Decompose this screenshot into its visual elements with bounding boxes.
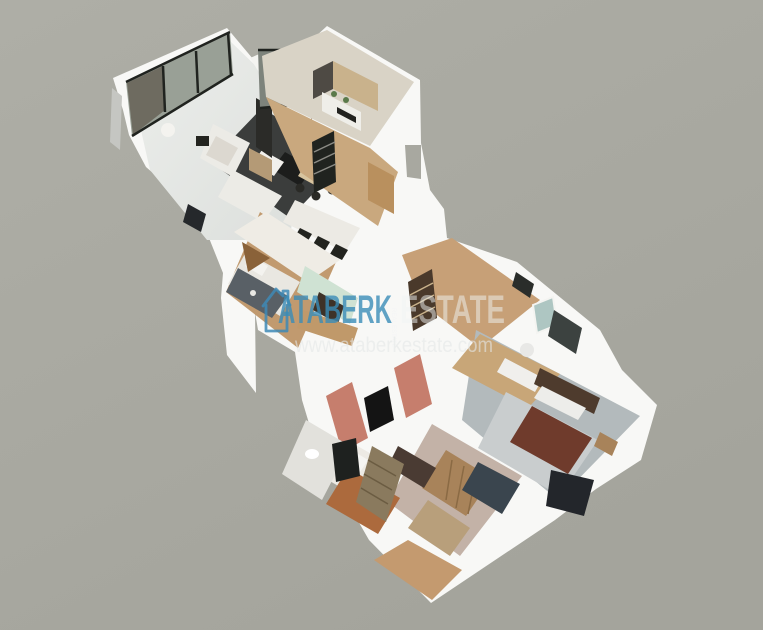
svg-text:www.ataberkestate.com: www.ataberkestate.com (294, 334, 493, 357)
svg-text:ATABERK: ATABERK (278, 288, 392, 332)
svg-text:ESTATE: ESTATE (400, 288, 505, 332)
